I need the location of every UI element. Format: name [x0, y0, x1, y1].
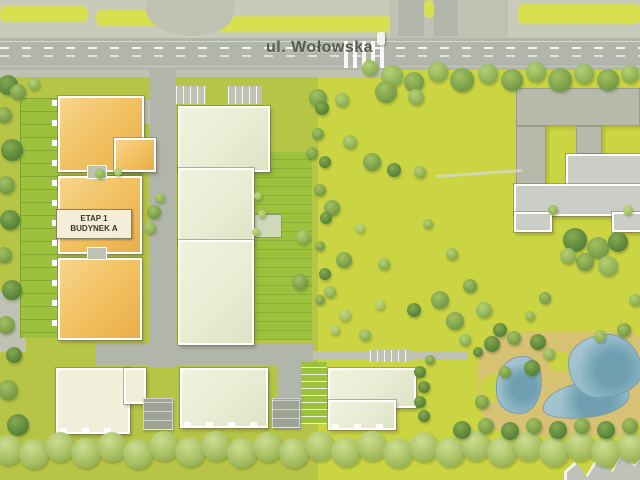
garage-block	[272, 398, 300, 428]
existing-building-light-1	[566, 154, 640, 188]
existing-building-light-4	[612, 212, 640, 232]
grass-verge	[518, 4, 640, 24]
internal-road-vertical-1	[150, 70, 176, 368]
balcony-strip	[60, 428, 122, 433]
side-road-north-right	[434, 0, 458, 36]
building-connector	[88, 166, 106, 178]
parking-row	[370, 350, 412, 362]
parking-row	[228, 86, 262, 104]
courtyard-garden	[252, 152, 312, 340]
existing-building-mid-leg	[576, 126, 602, 154]
stage-label-line1: ETAP 1	[57, 214, 131, 224]
stage-label-line2: BUDYNEK A	[57, 224, 131, 234]
traffic-island	[424, 0, 434, 18]
parking-row-green	[301, 362, 327, 424]
building-future-south	[180, 368, 268, 428]
playground	[254, 214, 282, 238]
building-stage1-block-south	[58, 258, 142, 340]
sidewalk-south	[0, 70, 392, 77]
pond-east	[568, 334, 640, 398]
building-future-mid-1	[178, 168, 254, 244]
grass-verge	[0, 6, 88, 22]
stage-label: ETAP 1 BUDYNEK A	[56, 209, 132, 239]
car	[377, 32, 385, 45]
side-road-north-left	[398, 0, 424, 36]
site-plan: ul. Wołowska	[0, 0, 640, 480]
parking-row	[176, 86, 206, 104]
lane-marking	[0, 66, 640, 67]
building-stage1-wing	[114, 138, 156, 172]
building-connector	[88, 248, 106, 259]
existing-building-light-3	[514, 212, 552, 232]
street-label: ul. Wołowska	[266, 39, 373, 57]
existing-building-north	[516, 88, 640, 126]
garage-block	[143, 398, 173, 430]
building-future-southwest	[56, 368, 130, 434]
balcony-strip	[332, 424, 388, 429]
grass-verge	[208, 16, 392, 32]
building-future-north	[178, 106, 270, 172]
balcony-strip	[184, 422, 258, 427]
building-future-mid-2	[178, 240, 254, 345]
